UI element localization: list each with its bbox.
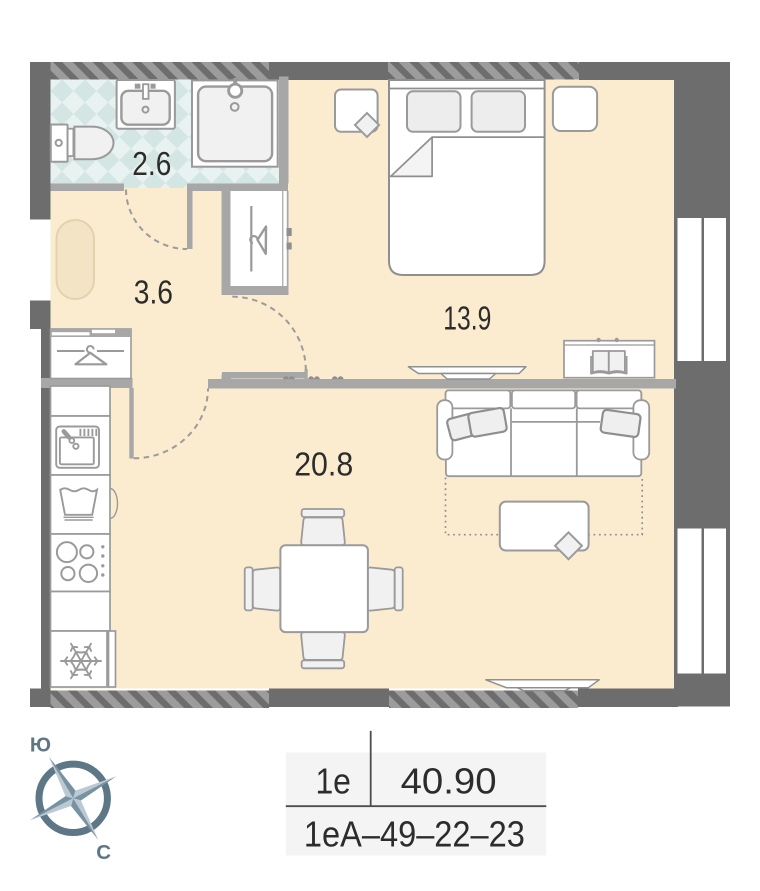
svg-text:1еА–49–22–23: 1еА–49–22–23 <box>304 813 525 854</box>
svg-text:1е: 1е <box>315 761 351 802</box>
svg-text:С: С <box>96 841 111 864</box>
svg-text:13.9: 13.9 <box>443 301 491 338</box>
svg-text:2.6: 2.6 <box>132 146 171 183</box>
svg-text:3.6: 3.6 <box>134 275 173 312</box>
svg-text:Ю: Ю <box>30 734 51 757</box>
svg-text:40.90: 40.90 <box>401 761 497 802</box>
svg-text:20.8: 20.8 <box>294 447 353 484</box>
